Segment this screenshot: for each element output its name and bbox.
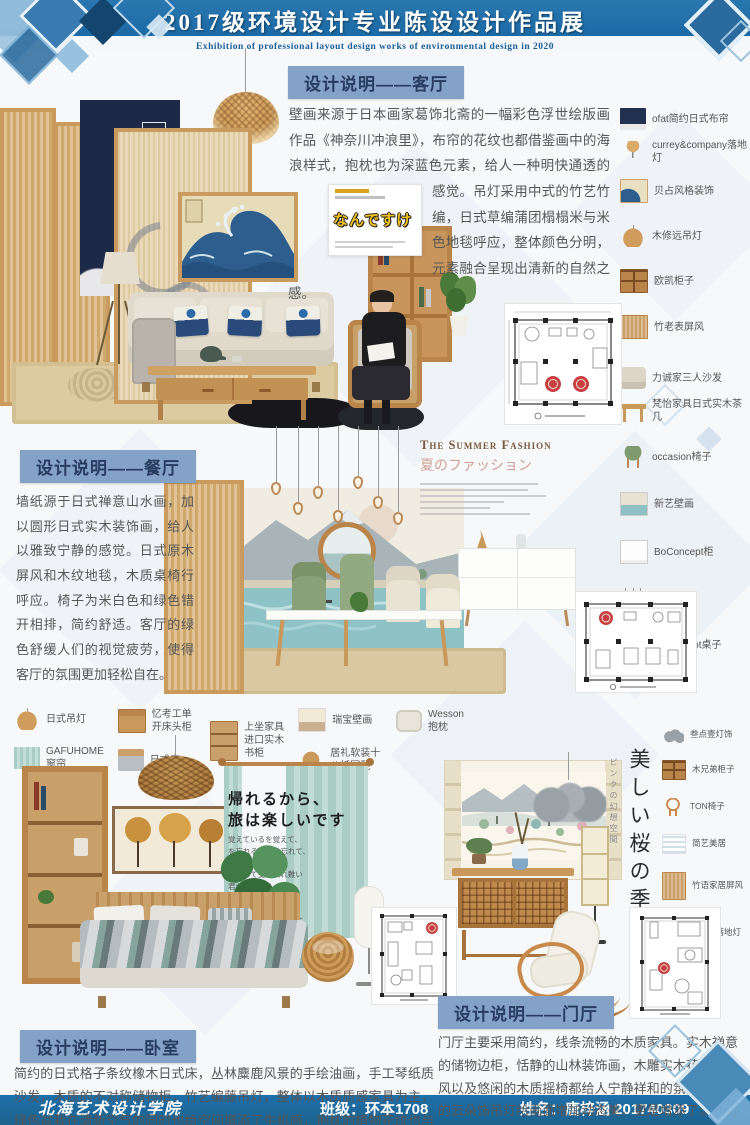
- teacup: [232, 356, 242, 362]
- item-label: 木兄弟柜子: [692, 764, 735, 775]
- green-chair-thumb: [620, 446, 646, 468]
- sideboard-body: [458, 548, 576, 610]
- pendant-cord: [378, 426, 379, 496]
- bamboo-screen-thumb: [620, 315, 648, 339]
- teapot: [200, 346, 222, 362]
- sideboard-door-divider: [517, 549, 518, 609]
- list-item: 瑞宝壁画: [298, 708, 382, 732]
- list-item: 简艺美居: [662, 834, 750, 854]
- pendant-cord: [298, 426, 299, 502]
- hall-floor-plan: [630, 908, 720, 1018]
- item-label: occasion椅子: [652, 451, 711, 464]
- branch-vase: [500, 812, 540, 870]
- wall-pilaster: [445, 761, 461, 879]
- list-item: 上坐家具进口实木书柜: [210, 721, 284, 761]
- nightstand-thumb: [118, 709, 146, 733]
- pendant-cord: [276, 426, 277, 482]
- glass-pendant-cluster: [268, 426, 410, 526]
- fine-print-line: [420, 489, 528, 491]
- living-item-list: ofat简约日式布帘 currey&company落地灯 贝占风格装饰 木修远吊…: [620, 108, 748, 433]
- magazine-line-decor: [335, 246, 393, 248]
- bed-leg: [282, 996, 290, 1008]
- glass-pendant: [373, 496, 383, 509]
- list-item: 忆考工单开床头柜: [118, 708, 196, 734]
- golden-tree-crown: [159, 813, 191, 843]
- paper-lamp-shade: [581, 826, 609, 906]
- monstera-leaf: [248, 842, 291, 882]
- bedroom-section-paragraph: 简约的日式格子条纹橡木日式床，丛林麋鹿风景的手绘油画，手工琴纸质沙发，木质的不对…: [14, 1062, 434, 1125]
- list-item: 竹语家居屏风: [662, 872, 750, 900]
- vase-decor: [516, 534, 526, 548]
- shelf-divider: [28, 821, 102, 825]
- magazine-line-decor: [335, 241, 405, 243]
- header-subtitle-band: Exhibition of professional layout design…: [0, 36, 750, 50]
- list-item: 日式吊灯: [14, 708, 104, 730]
- great-wave-painting: [178, 192, 298, 282]
- shelf-divider: [28, 873, 102, 877]
- list-item: 木兄弟柜子: [662, 760, 750, 780]
- wave-print-pillow: [173, 305, 209, 337]
- curtain-finial: [218, 758, 226, 766]
- bedroom-floor-plan: [372, 908, 456, 1004]
- table-leg: [301, 400, 306, 420]
- rattan-chair-thumb: [662, 798, 684, 816]
- floor-lamp-thumb: [620, 141, 646, 163]
- item-label: 瑞宝壁画: [332, 714, 372, 727]
- fine-print-line: [420, 501, 504, 503]
- person-skirt: [352, 366, 410, 400]
- item-label: 竹老表屏风: [654, 321, 704, 334]
- table-top: [148, 366, 316, 375]
- glass-pendant: [353, 476, 363, 489]
- person-leg: [364, 400, 372, 424]
- wave-print-pillow: [285, 305, 320, 336]
- exhibition-poster: 2017级环境设计专业陈设设计作品展 Exhibition of profess…: [0, 0, 750, 1125]
- item-label: 忆考工单开床头柜: [152, 708, 196, 734]
- wood-coffee-table: [148, 356, 316, 422]
- dining-table-set: [258, 548, 470, 680]
- summer-fashion-title-jp: 夏のファッション: [420, 455, 570, 475]
- item-label: 上坐家具进口实木书柜: [244, 721, 284, 760]
- dining-table-top: [266, 610, 462, 620]
- curtain-finial: [366, 758, 374, 766]
- rattan-pendant-thumb: [620, 225, 646, 247]
- summer-fashion-deco: The Summer Fashion 夏のファッション: [420, 438, 570, 519]
- wave-print-pillow: [227, 305, 263, 337]
- list-item: ofat简约日式布帘: [620, 108, 748, 130]
- item-label: 欧凯柜子: [654, 275, 694, 288]
- white-sideboard: [458, 534, 576, 628]
- list-item: Wesson抱枕: [396, 708, 464, 734]
- item-label: ofat简约日式布帘: [652, 113, 729, 126]
- item-label: 梵怡家具日式实木茶几: [652, 398, 748, 424]
- cabinet-thumb: [620, 269, 648, 293]
- item-label: currey&company落地灯: [652, 139, 748, 165]
- sofa-thumb: [620, 367, 646, 389]
- bedroom-body-text: 简约的日式格子条纹橡木日式床，丛林麋鹿风景的手绘油画，手工琴纸质沙发，木质的不对…: [14, 1066, 434, 1125]
- pendant-cord: [245, 48, 246, 94]
- reading-person-photo: [338, 292, 434, 426]
- dining-section-paragraph: 墙纸源于日式禅意山水画，加以圆形日式实木装饰画，给人以雅致宁静的感觉。日式原木屏…: [16, 490, 194, 688]
- floor-lamp-pole: [118, 284, 120, 364]
- item-label: BoConcept柜: [654, 546, 713, 559]
- navy-curtain-thumb: [620, 108, 646, 130]
- bed-thumb: [118, 749, 144, 771]
- dining-section-badge: 设计说明——餐厅: [20, 450, 196, 483]
- glass-pendant: [333, 510, 343, 523]
- list-item: TON椅子: [662, 798, 750, 816]
- bonsai-pot: [472, 854, 486, 864]
- living-floor-plan: [505, 304, 621, 424]
- pendant-cord: [398, 426, 399, 512]
- list-item: 叁点壹灯饰: [662, 726, 750, 744]
- bed-leg: [98, 996, 106, 1008]
- floor-lamp-shade: [100, 252, 140, 284]
- list-item: 竹老表屏风: [620, 315, 748, 339]
- coffee-table-thumb: [620, 400, 646, 422]
- glass-pendant: [293, 502, 303, 515]
- bonsai-foliage: [466, 838, 492, 854]
- item-label: TON椅子: [690, 801, 725, 812]
- item-label: 贝占风格装饰: [654, 185, 714, 198]
- fine-print-line: [420, 507, 490, 509]
- lamp-stand: [368, 948, 370, 974]
- item-label: 叁点壹灯饰: [690, 729, 733, 740]
- summer-fashion-title-en: The Summer Fashion: [420, 438, 570, 453]
- fine-print-line: [420, 495, 546, 497]
- item-label: 木修远吊灯: [652, 230, 702, 243]
- list-item: occasion椅子: [620, 446, 748, 468]
- book-spine: [41, 786, 46, 810]
- hall-section-badge: 设计说明——门厅: [438, 996, 614, 1029]
- list-item: 木修远吊灯: [620, 225, 748, 247]
- deer-figurine: [474, 530, 490, 548]
- fine-print-line: [420, 513, 530, 515]
- item-label: 力诚家三人沙发: [652, 372, 722, 385]
- golden-tree-crown: [125, 817, 151, 843]
- list-item: 梵怡家具日式实木茶几: [620, 398, 748, 424]
- cabinet-thumb: [662, 760, 686, 780]
- label-column: 上坐家具进口实木书柜: [210, 708, 284, 782]
- poster-subtitle: Exhibition of professional layout design…: [196, 42, 554, 52]
- poem-title-line1: 帰れるから、: [228, 788, 348, 809]
- pendant-cord: [568, 752, 569, 780]
- item-label: 新艺壁画: [654, 498, 694, 511]
- list-item: BoConcept柜: [620, 540, 748, 564]
- list-item: 力诚家三人沙发: [620, 367, 748, 389]
- dining-floor-plan: [576, 592, 696, 692]
- mural-thumb: [298, 708, 326, 732]
- table-leg: [344, 620, 348, 666]
- person-leg: [382, 400, 390, 424]
- table-centerpiece-plant: [350, 592, 368, 612]
- poem-title-line2: 旅は楽しいです: [228, 809, 348, 830]
- sideboard-thumb: [620, 540, 648, 564]
- blue-white-vase: [512, 844, 528, 870]
- living-section-badge: 设计说明——客厅: [288, 66, 464, 99]
- bed-throw: [80, 968, 308, 988]
- bedroom-section-badge: 设计说明——卧室: [20, 1030, 196, 1063]
- glass-pendant: [271, 482, 281, 495]
- glass-pendant: [313, 486, 323, 499]
- tree-trunk: [209, 841, 211, 867]
- pendant-cord: [175, 735, 176, 757]
- japanese-bed: [80, 892, 308, 1008]
- shelf-vase: [74, 838, 88, 856]
- list-item: 新艺壁画: [620, 492, 748, 516]
- cloud-pendant-lamp: [528, 778, 612, 822]
- item-label: Wesson抱枕: [428, 708, 464, 734]
- pillow-thumb: [396, 710, 422, 732]
- rattan-pendant-thumb: [14, 708, 40, 730]
- dining-body-text: 墙纸源于日式禅意山水画，加以圆形日式实木装饰画，给人以雅致宁静的感觉。日式原木屏…: [16, 494, 194, 682]
- fine-print-line: [420, 483, 538, 485]
- table-leg: [276, 620, 285, 666]
- table-drawers: [156, 378, 308, 400]
- bookcase-thumb: [210, 721, 238, 761]
- item-label: 简艺美居: [692, 838, 726, 849]
- item-label: 竹语家居屏风: [692, 880, 743, 891]
- tree-trunk: [173, 841, 175, 867]
- branch: [521, 818, 530, 846]
- list-item: 贝占风格装饰: [620, 179, 748, 203]
- landscape-art-thumb: [620, 492, 648, 516]
- wave-art-thumb: [620, 179, 648, 203]
- drawer-handle: [202, 389, 214, 392]
- pendant-cord: [338, 426, 339, 510]
- lamp-shade-rib: [583, 853, 607, 855]
- magazine-topline-decor: [335, 196, 385, 199]
- item-label: 日式吊灯: [46, 713, 86, 726]
- bonsai: [462, 838, 496, 868]
- bamboo-screen-thumb: [662, 872, 686, 900]
- japanese-magazine-cover: なんですけ: [328, 184, 422, 256]
- soft-decor-thumb: [662, 834, 686, 854]
- table-leg: [158, 400, 163, 420]
- woven-rattan-pendant: [138, 756, 214, 800]
- magazine-title: なんですけ: [333, 207, 412, 236]
- lamp-shade-rib: [583, 878, 607, 880]
- pendant-cord: [358, 426, 359, 476]
- cloud-lamp-thumb: [662, 726, 684, 744]
- rattan-round-stool: [302, 932, 354, 982]
- list-item: currey&company落地灯: [620, 139, 748, 165]
- tree-trunk: [137, 841, 139, 867]
- shelf-plant: [38, 890, 54, 904]
- pendant-cord: [318, 426, 319, 486]
- drawer-divider: [232, 378, 234, 400]
- glass-pendant: [393, 512, 403, 525]
- list-item: 欧凯柜子: [620, 269, 748, 293]
- plant-pot: [448, 316, 470, 336]
- stool-top-highlight: [312, 940, 344, 954]
- book-spine: [34, 782, 39, 810]
- golden-tree-crown: [199, 819, 223, 843]
- poem-line: 覚えているを覚えて、: [228, 834, 348, 846]
- living-section-paragraph: なんですけ 壁画来源于日本画家葛饰北斋的一幅彩色浮世绘版画作品《神奈川冲浪里》，…: [288, 102, 610, 307]
- magazine-topline-decor: [335, 189, 369, 193]
- sideboard-leg: [564, 610, 569, 626]
- sideboard-line: [459, 577, 575, 578]
- drawer-handle: [259, 389, 271, 392]
